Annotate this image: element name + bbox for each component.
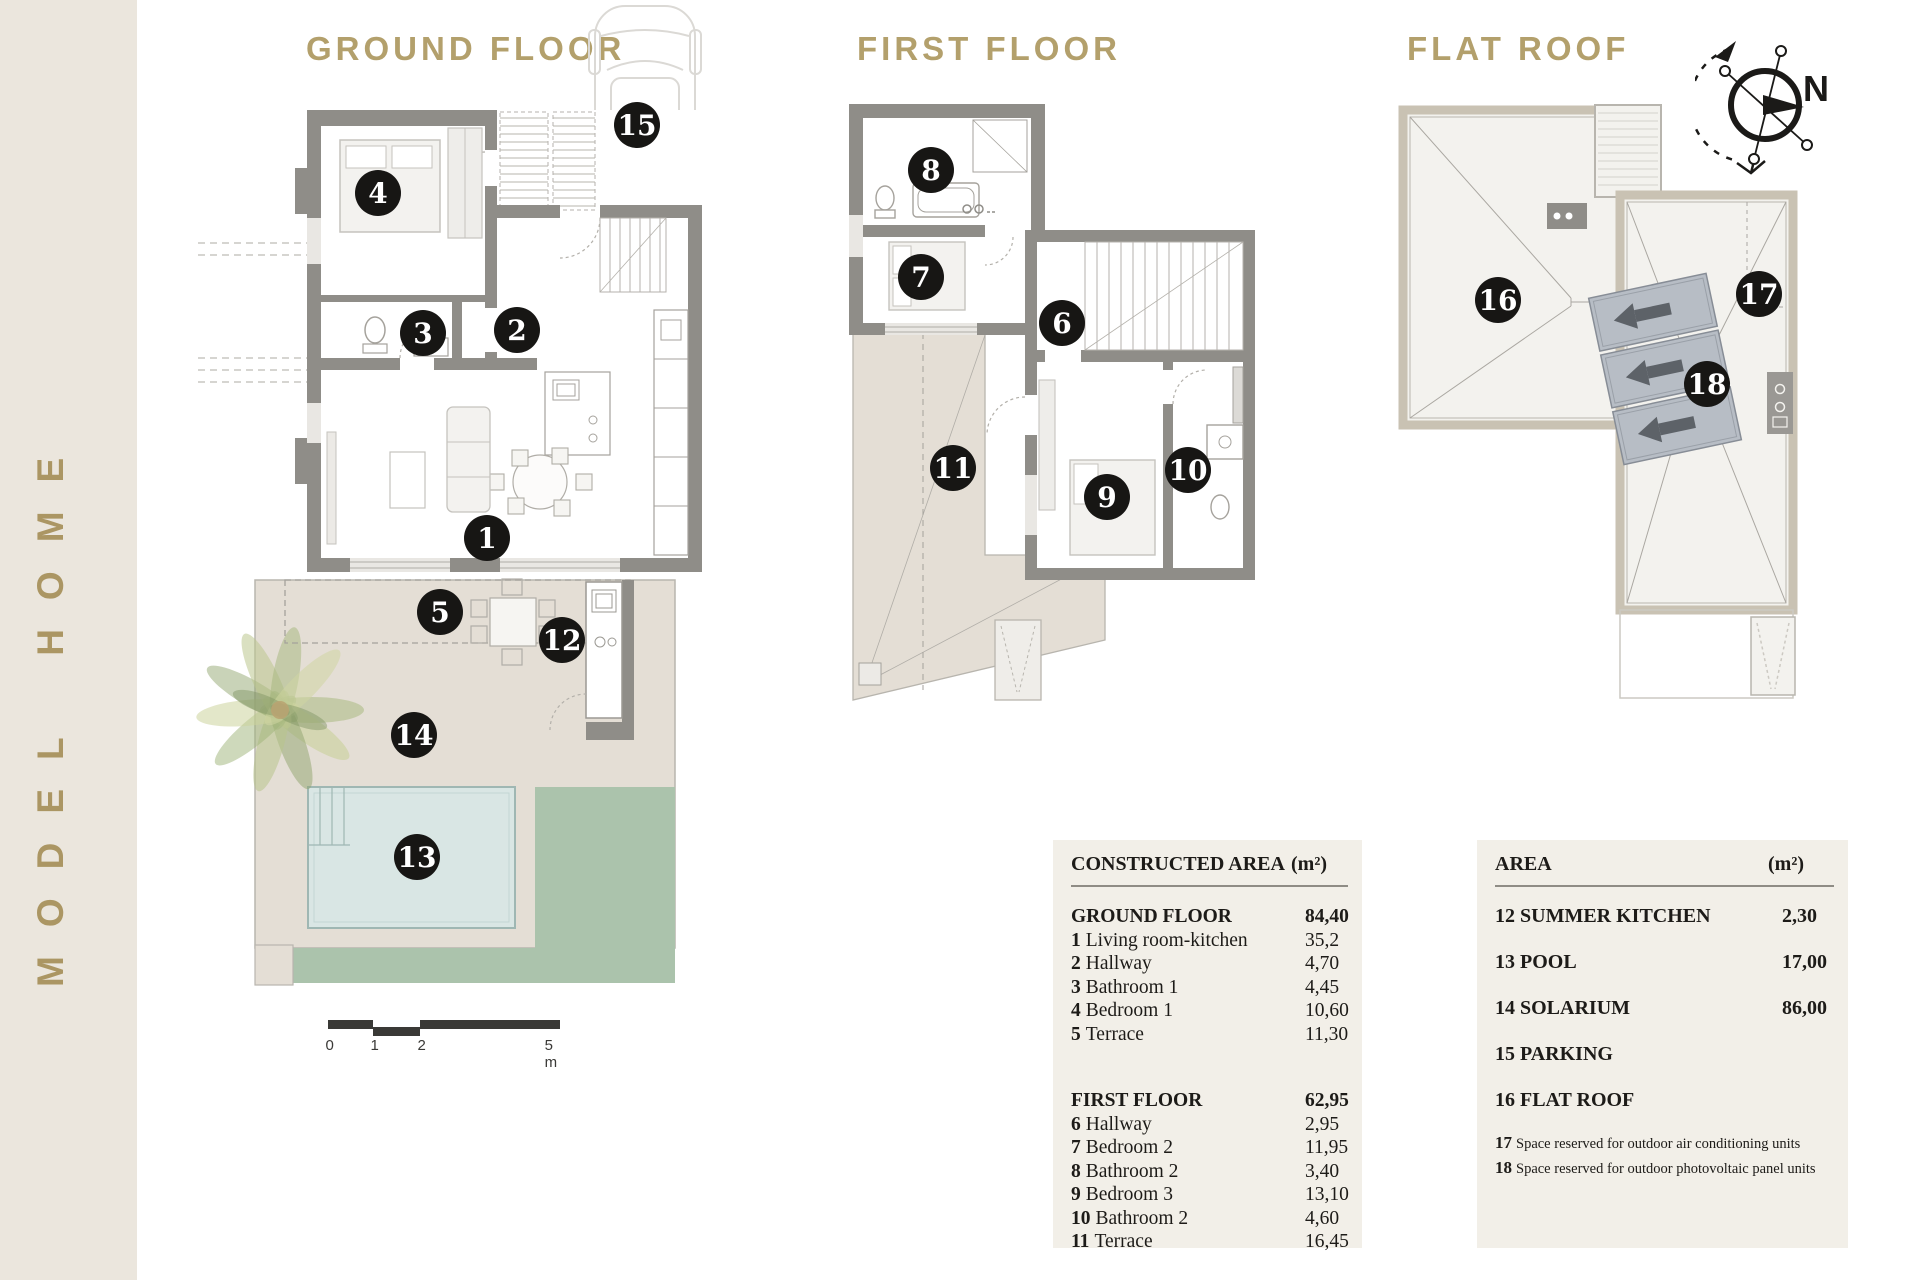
pool bbox=[308, 787, 515, 928]
ground-floor-section: GROUND FLOOR 84,40 1 Living room-kitchen… bbox=[1071, 905, 1362, 1046]
compass-arrow-icon bbox=[1715, 41, 1736, 62]
scale-label: 0 bbox=[325, 1037, 333, 1054]
table-row: 7 Bedroom 2 11,95 bbox=[1071, 1136, 1362, 1160]
table-row: 1 Living room-kitchen 35,2 bbox=[1071, 929, 1362, 953]
table-row: 11 Terrace 16,45 bbox=[1071, 1230, 1362, 1254]
section-total-row: GROUND FLOOR 84,40 bbox=[1071, 905, 1362, 929]
table-row: 13 POOL 17,00 bbox=[1495, 951, 1848, 973]
sidebar: MODEL HOME bbox=[0, 0, 137, 1280]
table-row: 14 SOLARIUM 86,00 bbox=[1495, 997, 1848, 1019]
north-label: N bbox=[1803, 68, 1829, 109]
ac-unit bbox=[1767, 372, 1793, 434]
table-row: 9 Bedroom 3 13,10 bbox=[1071, 1183, 1362, 1207]
area-notes: 17Space reserved for outdoor air conditi… bbox=[1495, 1131, 1848, 1181]
table-row: 12 SUMMER KITCHEN 2,30 bbox=[1495, 905, 1848, 927]
table-row: 16 FLAT ROOF bbox=[1495, 1089, 1848, 1111]
table-row: 6 Hallway 2,95 bbox=[1071, 1113, 1362, 1137]
scale-segment bbox=[373, 1027, 420, 1036]
first-floor-section: FIRST FLOOR 62,95 6 Hallway 2,95 7 Bedro… bbox=[1071, 1089, 1362, 1254]
bedroom2-furniture bbox=[889, 242, 965, 310]
table-row: 8 Bathroom 2 3,40 bbox=[1071, 1160, 1362, 1184]
flat-roof-plan bbox=[1395, 95, 1825, 735]
title-flat-roof: FLAT ROOF bbox=[1407, 30, 1629, 68]
table-row: 3 Bathroom 1 4,45 bbox=[1071, 976, 1362, 1000]
constructed-area-table: CONSTRUCTED AREA (m²) GROUND FLOOR 84,40… bbox=[1053, 840, 1362, 1248]
table-row: 10 Bathroom 2 4,60 bbox=[1071, 1207, 1362, 1231]
scale-label: 5 m bbox=[545, 1037, 563, 1071]
scale-label: 2 bbox=[417, 1037, 425, 1054]
table-header-unit: (m²) bbox=[1291, 853, 1348, 876]
ground-floor-plan bbox=[190, 0, 820, 1010]
title-first-floor: FIRST FLOOR bbox=[857, 30, 1121, 68]
table-header-unit: (m²) bbox=[1768, 853, 1834, 876]
area-rows: 12 SUMMER KITCHEN 2,30 13 POOL 17,00 14 … bbox=[1495, 905, 1848, 1111]
table-row: 5 Terrace 11,30 bbox=[1071, 1023, 1362, 1047]
floor-plan-brochure: MODEL HOME GROUND FLOOR FIRST FLOOR FLAT… bbox=[0, 0, 1920, 1280]
scale-segment bbox=[328, 1020, 373, 1029]
note-row: 18Space reserved for outdoor photovoltai… bbox=[1495, 1156, 1848, 1181]
lower-projection bbox=[995, 620, 1041, 700]
lawn-bottom bbox=[293, 948, 675, 983]
table-row: 2 Hallway 4,70 bbox=[1071, 952, 1362, 976]
area-table: AREA (m²) 12 SUMMER KITCHEN 2,30 13 POOL… bbox=[1477, 840, 1848, 1248]
lawn-right bbox=[535, 787, 675, 948]
compass-rose: N bbox=[1695, 35, 1835, 175]
scale-label: 1 bbox=[370, 1037, 378, 1054]
table-header: CONSTRUCTED AREA (m²) bbox=[1071, 853, 1348, 887]
stairs bbox=[600, 218, 666, 292]
solarium-step bbox=[255, 945, 293, 985]
note-row: 17Space reserved for outdoor air conditi… bbox=[1495, 1131, 1848, 1156]
reference-lines bbox=[198, 243, 307, 382]
scale-segment bbox=[420, 1020, 560, 1029]
lower-level-outline bbox=[1620, 610, 1795, 698]
table-header-label: AREA bbox=[1495, 853, 1768, 876]
table-header: AREA (m²) bbox=[1495, 853, 1834, 887]
table-row: 15 PARKING bbox=[1495, 1043, 1848, 1065]
table-row: 4 Bedroom 1 10,60 bbox=[1071, 999, 1362, 1023]
stairs bbox=[1085, 242, 1243, 350]
brand-vertical-title: MODEL HOME bbox=[30, 293, 106, 987]
section-total-row: FIRST FLOOR 62,95 bbox=[1071, 1089, 1362, 1113]
scale-labels: 0125 m bbox=[328, 1037, 568, 1055]
scale-bar: 0125 m bbox=[328, 1020, 568, 1054]
first-floor-plan bbox=[845, 95, 1305, 735]
table-header-label: CONSTRUCTED AREA bbox=[1071, 853, 1291, 876]
